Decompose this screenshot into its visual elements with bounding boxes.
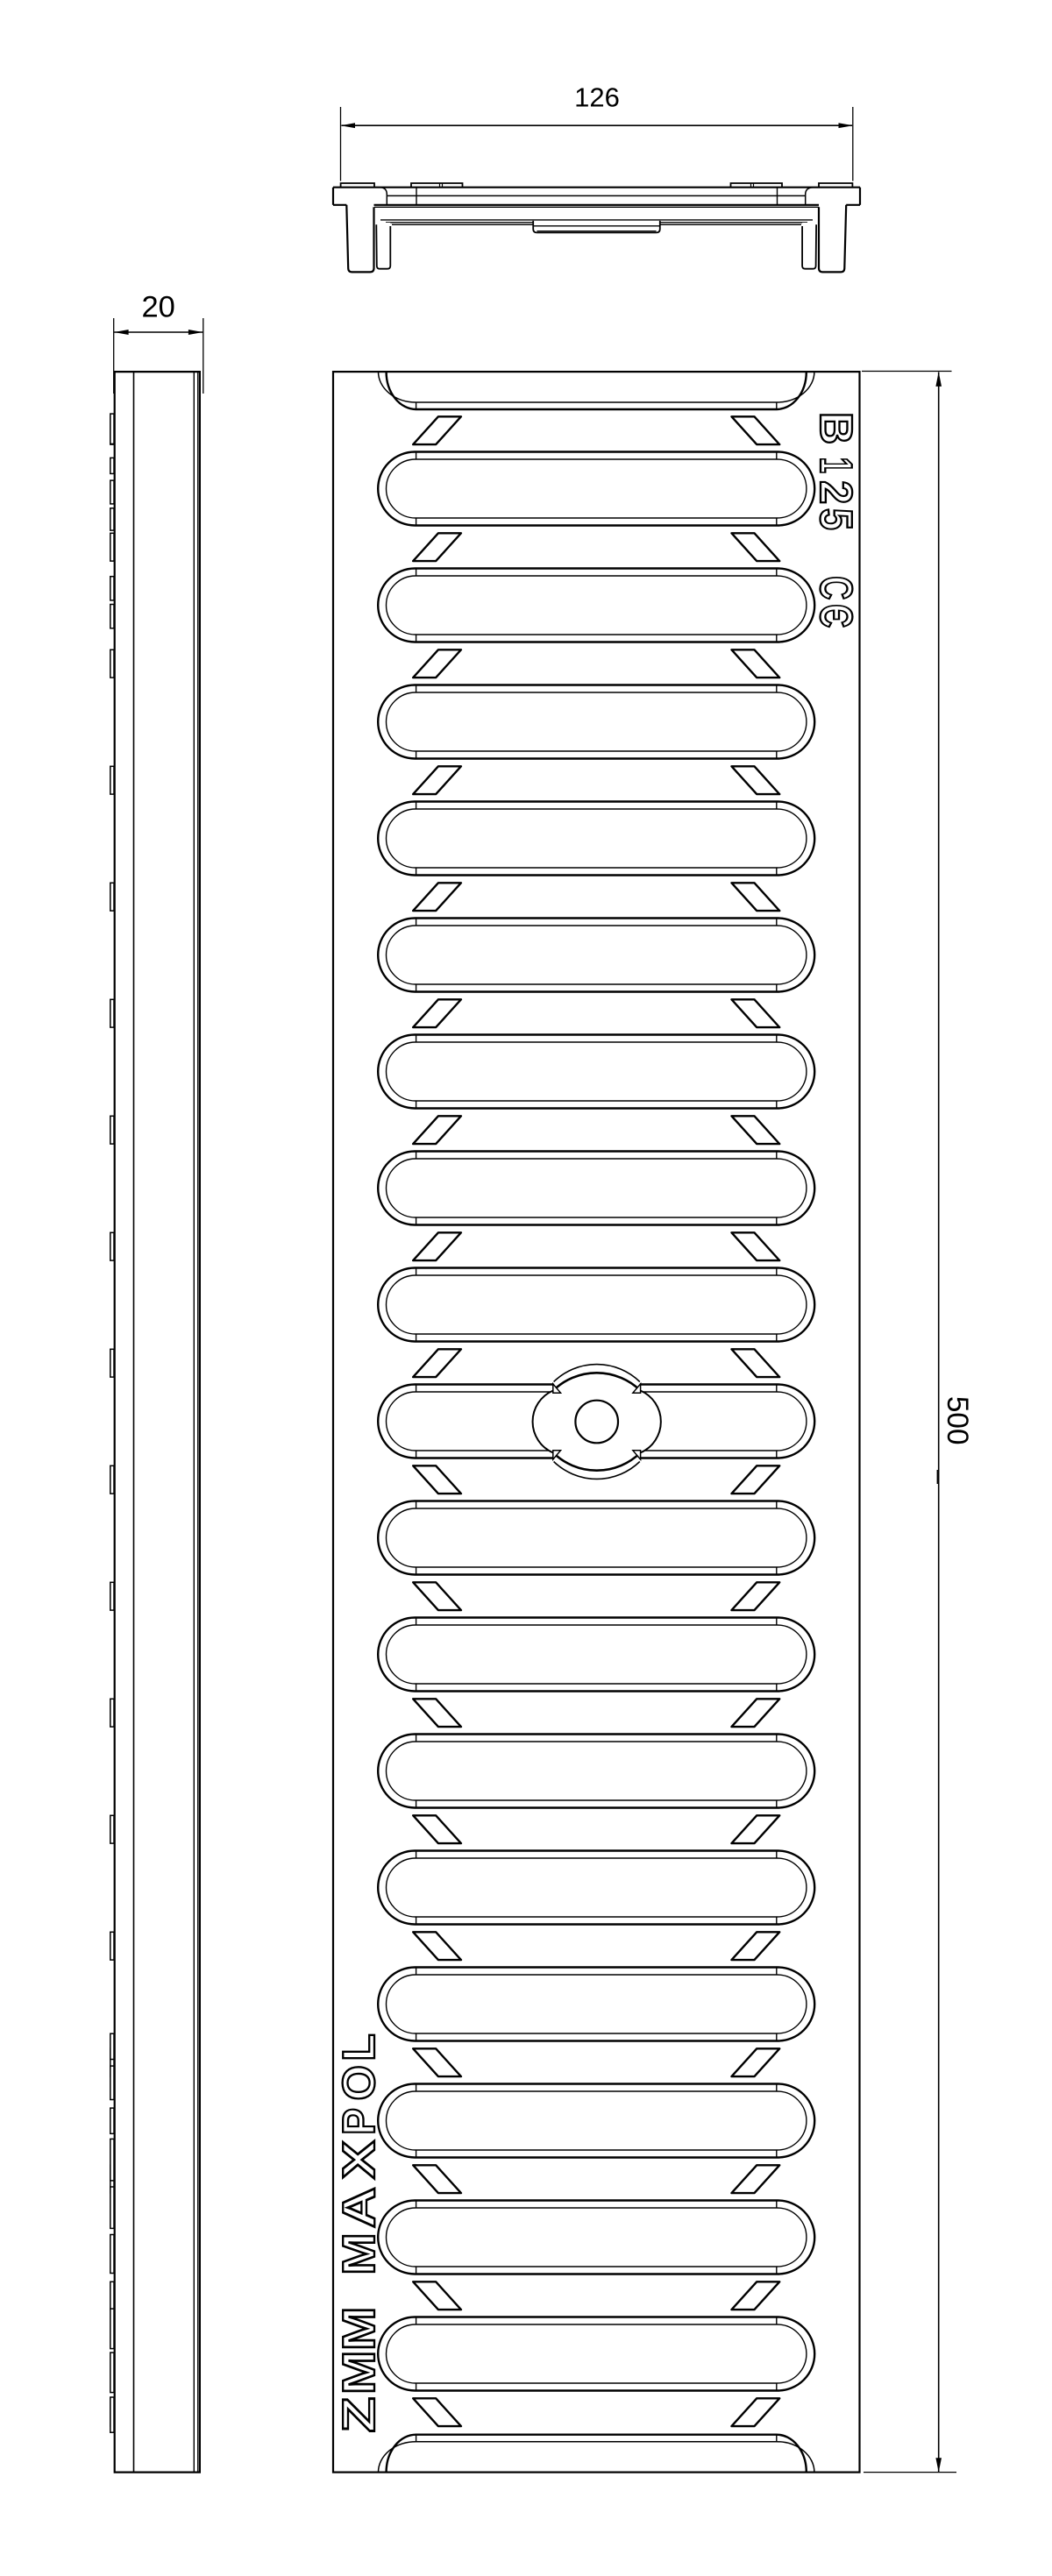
svg-text:126: 126 <box>574 82 620 112</box>
svg-text:X: X <box>334 2140 385 2179</box>
svg-text:L: L <box>334 2033 385 2061</box>
svg-text:M: M <box>334 2232 385 2274</box>
svg-text:M: M <box>334 2351 385 2395</box>
svg-text:B: B <box>810 412 861 444</box>
svg-text:5: 5 <box>810 508 861 530</box>
svg-text:O: O <box>334 2065 385 2100</box>
svg-text:C: C <box>810 576 861 600</box>
svg-text:20: 20 <box>142 291 175 324</box>
svg-text:1: 1 <box>810 458 861 473</box>
svg-text:500: 500 <box>941 1396 974 1445</box>
svg-text:Є: Є <box>810 604 861 628</box>
svg-text:2: 2 <box>810 480 861 504</box>
svg-text:M: M <box>334 2307 385 2351</box>
svg-text:P: P <box>334 2108 385 2135</box>
svg-text:A: A <box>334 2187 385 2228</box>
svg-text:Z: Z <box>334 2397 385 2433</box>
